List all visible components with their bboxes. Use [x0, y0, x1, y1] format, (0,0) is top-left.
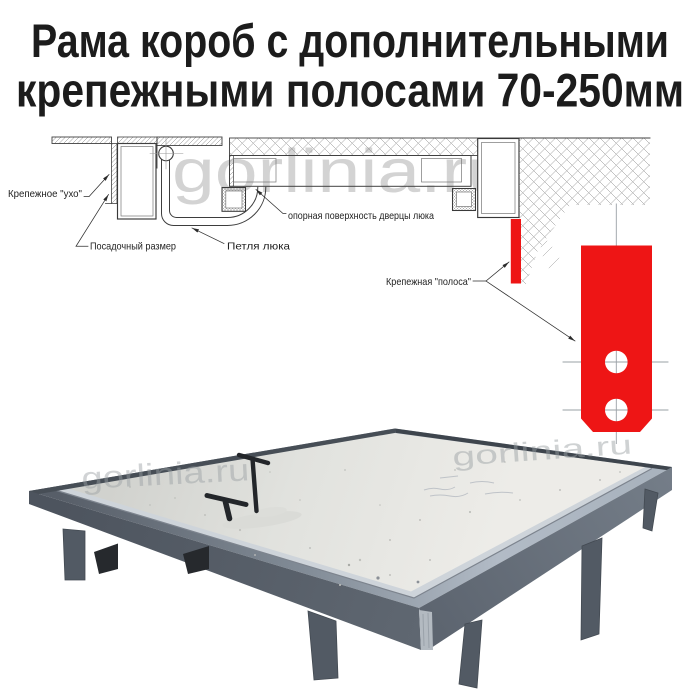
svg-text:Рама короб с дополнительными: Рама короб с дополнительными	[31, 14, 669, 67]
svg-text:Посадочный размер: Посадочный размер	[90, 241, 176, 253]
svg-text:Крепежное "ухо": Крепежное "ухо"	[8, 188, 82, 200]
svg-text:опорная поверхность дверцы люк: опорная поверхность дверцы люка	[288, 210, 434, 222]
svg-text:крепежными полосами 70-250мм: крепежными полосами 70-250мм	[16, 64, 684, 117]
svg-text:Крепежная "полоса": Крепежная "полоса"	[386, 276, 471, 288]
svg-text:Петля люка: Петля люка	[227, 241, 290, 253]
